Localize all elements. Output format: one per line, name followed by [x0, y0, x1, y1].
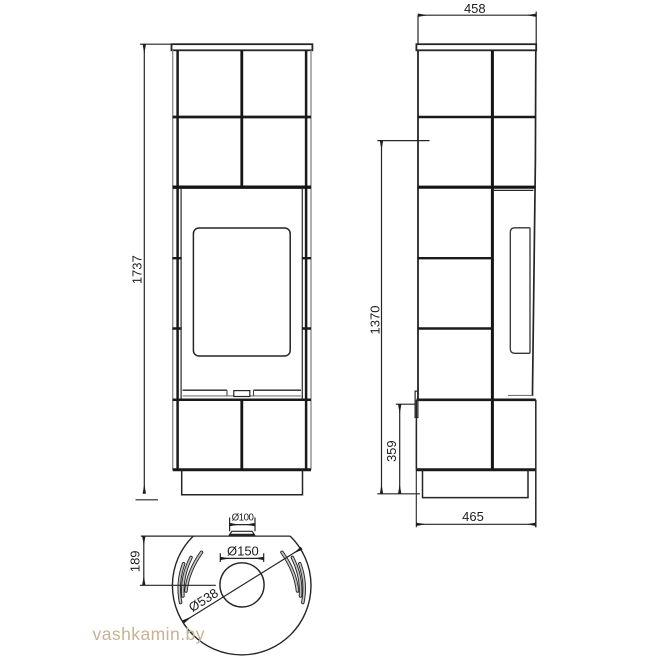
svg-text:189: 189 [128, 550, 143, 572]
svg-text:vashkamin.by: vashkamin.by [93, 624, 205, 644]
svg-text:1737: 1737 [129, 255, 144, 284]
svg-text:Ø150: Ø150 [227, 544, 259, 559]
svg-text:Ø538: Ø538 [186, 585, 221, 615]
svg-text:465: 465 [462, 509, 484, 524]
svg-text:359: 359 [384, 440, 399, 462]
svg-text:1370: 1370 [367, 306, 382, 335]
svg-text:458: 458 [464, 1, 486, 16]
svg-text:Ø100: Ø100 [232, 513, 255, 524]
